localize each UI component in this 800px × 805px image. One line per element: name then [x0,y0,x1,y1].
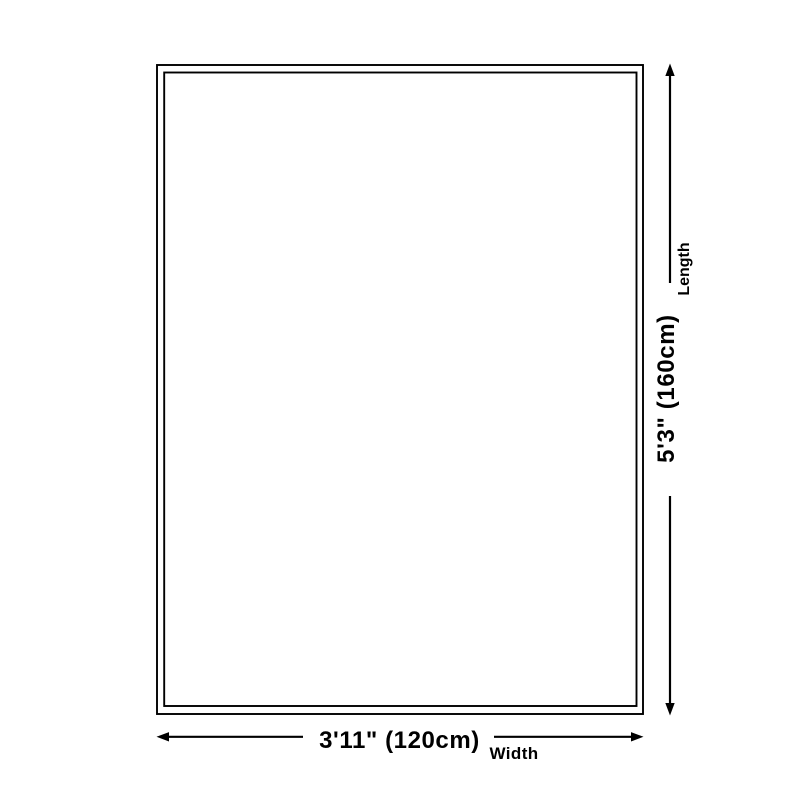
svg-text:5'3" (160cm): 5'3" (160cm) [653,314,680,463]
svg-text:Width: Width [490,744,539,763]
svg-text:Length: Length [676,242,693,295]
svg-text:3'11" (120cm): 3'11" (120cm) [319,727,480,754]
